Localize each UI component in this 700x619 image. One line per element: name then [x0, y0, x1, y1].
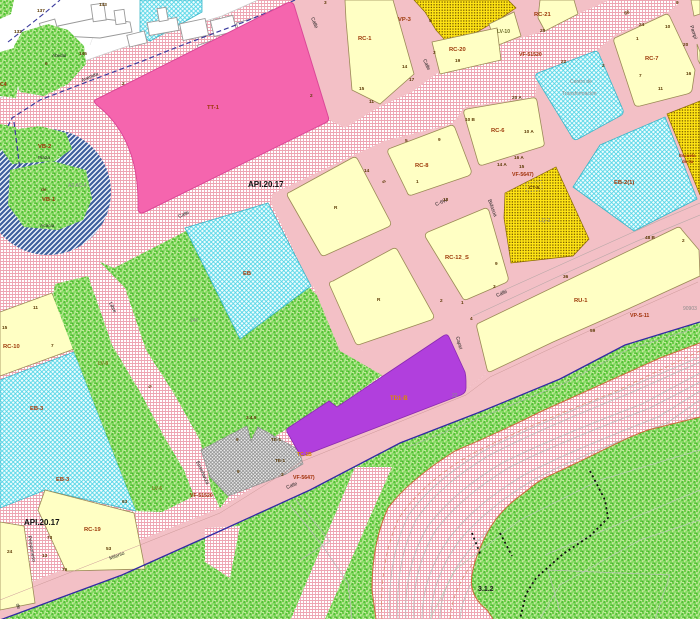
svg-text:20: 20 [683, 42, 689, 47]
svg-text:11: 11 [369, 99, 374, 104]
svg-text:Escuela: Escuela [679, 153, 696, 158]
svg-text:2: 2 [310, 93, 313, 98]
svg-text:48 B: 48 B [645, 235, 656, 240]
svg-text:TE-1: TE-1 [275, 458, 286, 463]
svg-text:RC-12_S: RC-12_S [445, 255, 469, 261]
svg-text:1: 1 [636, 36, 639, 41]
svg-text:C4: C4 [0, 82, 7, 88]
svg-text:19: 19 [455, 58, 461, 63]
svg-text:TT-1: TT-1 [207, 105, 220, 111]
svg-text:RC-8: RC-8 [415, 163, 429, 169]
svg-text:1: 1 [461, 300, 464, 305]
svg-text:17: 17 [409, 77, 415, 82]
svg-text:15: 15 [2, 325, 8, 330]
svg-text:EB: EB [243, 271, 251, 277]
svg-text:16 A: 16 A [514, 155, 524, 160]
svg-text:LQ-2: LQ-2 [539, 218, 550, 224]
svg-text:2: 2 [440, 298, 443, 303]
svg-text:EB-3: EB-3 [30, 406, 44, 412]
svg-text:10 B: 10 B [465, 117, 476, 122]
svg-text:53: 53 [106, 546, 112, 551]
svg-text:147: 147 [190, 318, 199, 324]
svg-text:2: 2 [682, 238, 685, 243]
svg-text:VP-3: VP-3 [398, 17, 412, 23]
svg-text:9: 9 [236, 437, 239, 442]
svg-text:5: 5 [405, 138, 408, 143]
svg-text:LV-10: LV-10 [497, 29, 510, 35]
svg-text:13: 13 [443, 197, 449, 202]
svg-text:137: 137 [37, 8, 45, 13]
svg-text:VB-1: VB-1 [42, 197, 56, 203]
svg-text:Plaza: Plaza [38, 155, 50, 161]
svg-text:90903: 90903 [683, 306, 697, 312]
svg-text:Abedul: Abedul [52, 53, 66, 58]
svg-text:RC-21: RC-21 [534, 12, 552, 18]
svg-text:6: 6 [45, 61, 48, 66]
svg-text:7: 7 [639, 73, 642, 78]
svg-text:RC-20: RC-20 [449, 47, 466, 53]
svg-text:RC-7: RC-7 [645, 56, 659, 62]
svg-text:TC-1B: TC-1B [297, 452, 312, 458]
svg-text:24: 24 [639, 22, 645, 27]
svg-text:Transformación: Transformación [562, 91, 597, 97]
svg-text:9: 9 [676, 0, 679, 5]
svg-text:LV-8: LV-8 [98, 361, 108, 367]
svg-text:15: 15 [519, 164, 525, 169]
svg-text:Acacia: Acacia [40, 223, 55, 229]
svg-text:VF-51520: VF-51520 [519, 52, 542, 58]
svg-text:11: 11 [33, 305, 38, 310]
svg-text:VP-S-11: VP-S-11 [630, 313, 649, 319]
svg-text:14 A: 14 A [497, 162, 507, 167]
svg-text:VF-5647): VF-5647) [293, 475, 315, 481]
svg-text:TD1-B: TD1-B [390, 396, 408, 402]
svg-text:3: 3 [281, 472, 284, 477]
svg-text:59: 59 [590, 328, 596, 333]
svg-text:de 3a: de 3a [682, 159, 694, 164]
svg-text:RC-19: RC-19 [84, 527, 102, 533]
svg-text:3.4.9: 3.4.9 [246, 415, 257, 420]
svg-text:RC-1: RC-1 [358, 36, 372, 42]
svg-text:16: 16 [686, 71, 692, 76]
svg-text:13: 13 [42, 553, 48, 558]
svg-text:A2 AC-4: A2 AC-4 [68, 183, 87, 189]
svg-text:14: 14 [402, 64, 408, 69]
svg-text:14: 14 [364, 168, 370, 173]
svg-text:1: 1 [416, 179, 419, 184]
svg-text:de: de [41, 187, 47, 192]
svg-text:36: 36 [563, 274, 569, 279]
svg-text:2: 2 [602, 63, 605, 68]
svg-text:3: 3 [493, 284, 496, 289]
svg-text:24: 24 [7, 549, 13, 554]
svg-text:EB-3: EB-3 [56, 477, 70, 483]
svg-text:VF-5647): VF-5647) [512, 172, 534, 178]
svg-text:TE-1: TE-1 [271, 437, 282, 442]
svg-text:22: 22 [452, 393, 458, 399]
svg-text:Centro de: Centro de [570, 79, 592, 85]
svg-text:RC-6: RC-6 [491, 128, 505, 134]
svg-text:EB-2(1): EB-2(1) [614, 180, 634, 186]
svg-text:15: 15 [359, 86, 365, 91]
svg-text:20 A: 20 A [512, 95, 522, 100]
svg-text:4: 4 [470, 316, 473, 321]
svg-text:2: 2 [122, 81, 125, 86]
svg-text:3: 3 [433, 50, 436, 55]
svg-text:3.1.2: 3.1.2 [478, 586, 494, 593]
svg-text:22: 22 [561, 59, 567, 64]
svg-text:9: 9 [237, 469, 240, 474]
svg-text:7: 7 [51, 343, 54, 348]
svg-text:API.20.17: API.20.17 [248, 180, 284, 189]
svg-text:3: 3 [324, 0, 327, 5]
svg-text:143: 143 [99, 2, 107, 7]
svg-text:API.20.17: API.20.17 [24, 518, 60, 527]
svg-text:145: 145 [79, 51, 87, 56]
svg-text:RU-1: RU-1 [574, 298, 588, 304]
svg-text:9: 9 [438, 137, 441, 142]
svg-text:63: 63 [122, 499, 128, 504]
svg-text:73: 73 [47, 535, 53, 540]
svg-text:VB-2: VB-2 [38, 144, 51, 150]
svg-text:5: 5 [429, 18, 432, 23]
svg-text:132: 132 [14, 29, 22, 34]
svg-text:VF-51520: VF-51520 [190, 493, 213, 499]
svg-text:25: 25 [540, 28, 546, 33]
svg-text:RC-10: RC-10 [3, 344, 20, 350]
svg-text:9: 9 [495, 261, 498, 266]
svg-text:CT-5: CT-5 [529, 185, 540, 190]
svg-text:11: 11 [658, 86, 663, 91]
svg-text:10 A: 10 A [524, 129, 534, 134]
svg-text:10: 10 [665, 24, 671, 29]
svg-text:79: 79 [62, 567, 68, 572]
svg-text:LV-6: LV-6 [152, 486, 162, 492]
